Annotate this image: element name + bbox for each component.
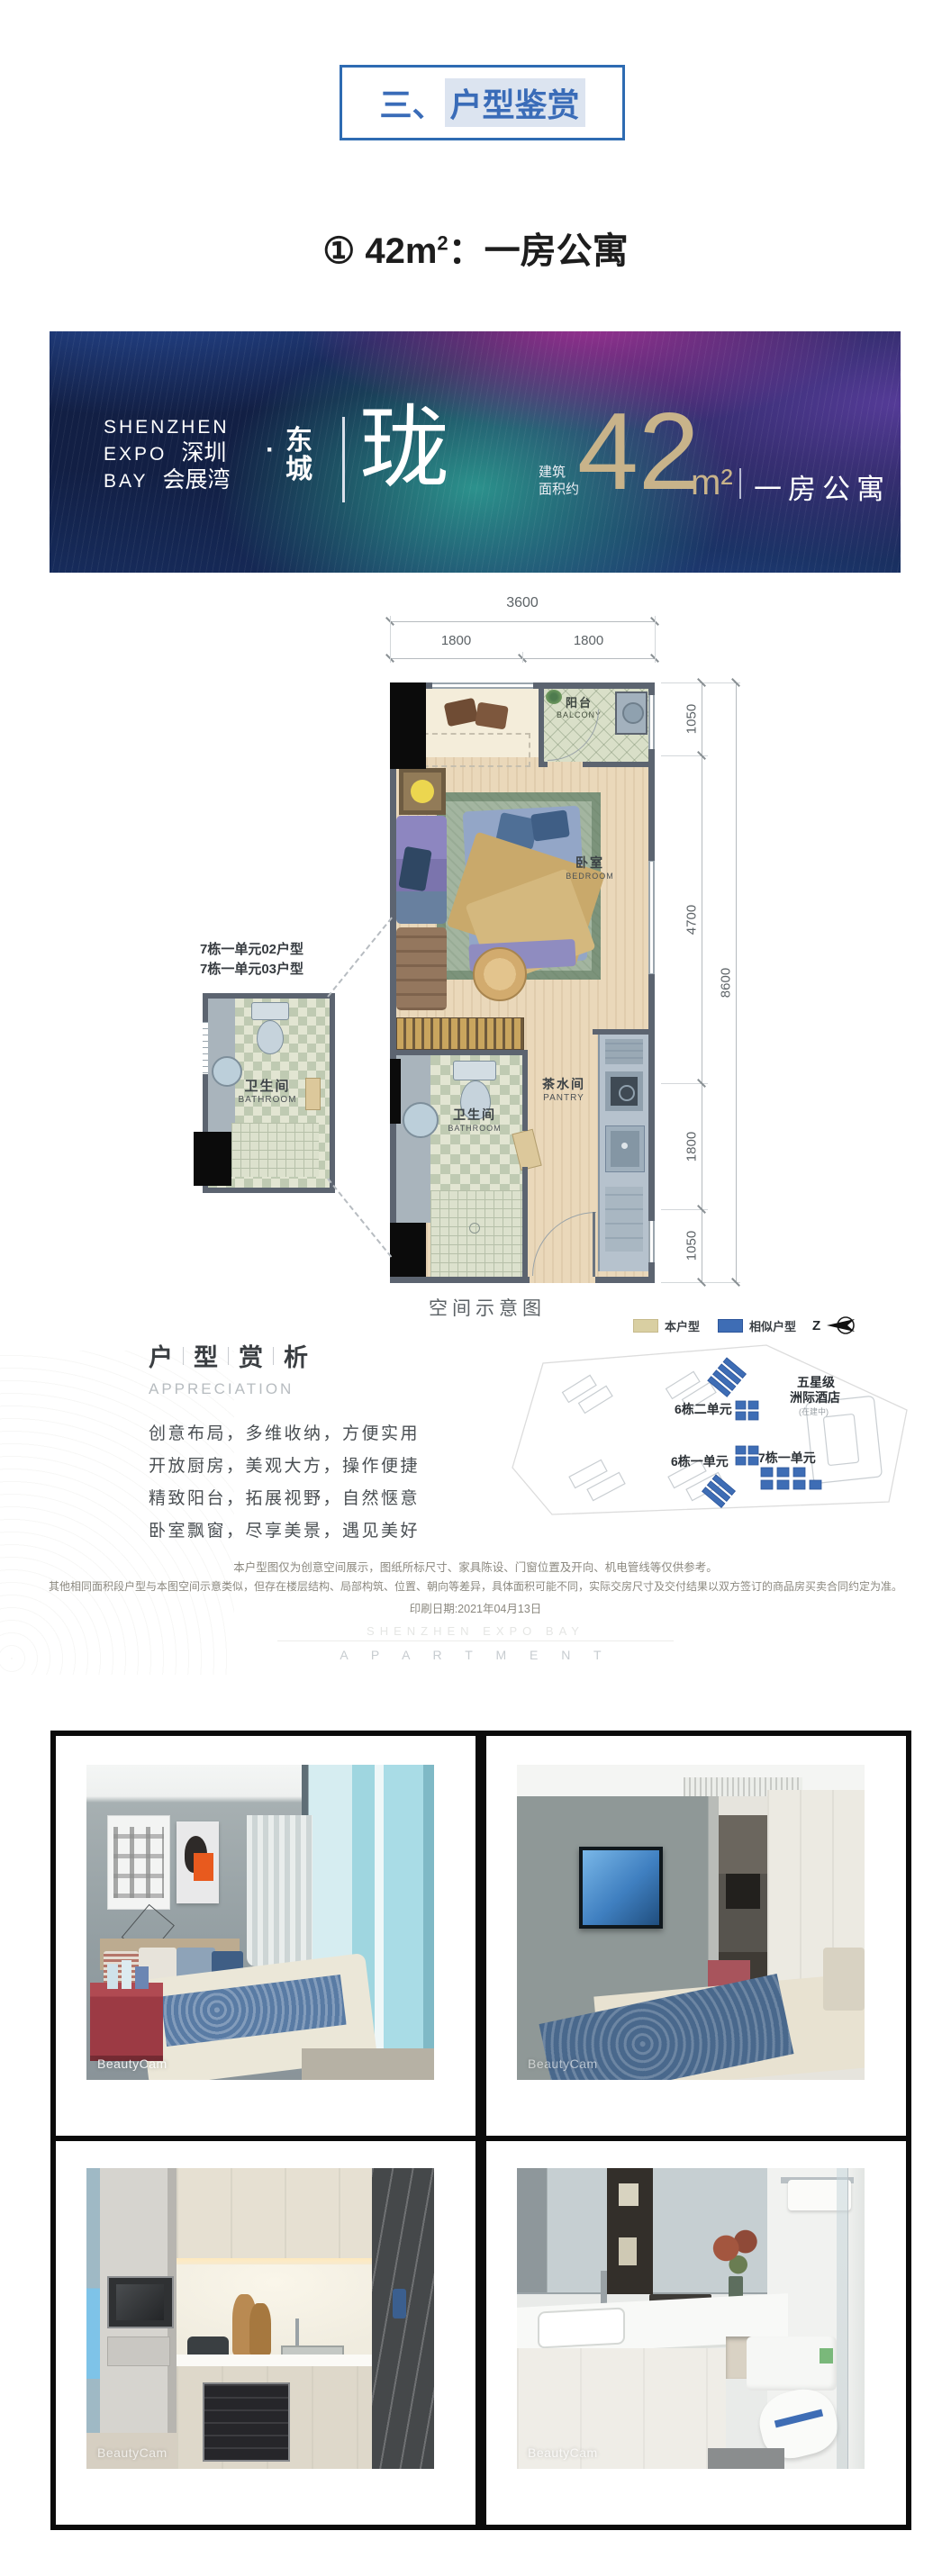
detail-toilet-tank xyxy=(251,1002,289,1020)
bottle xyxy=(107,1964,118,1989)
bathroom-label-en: BATHROOM xyxy=(428,1124,521,1133)
dim-top-total: 3600 xyxy=(477,595,567,611)
wall xyxy=(539,762,548,767)
title-separator xyxy=(273,1347,274,1365)
floor-plan: 阳台 BALCONY 卧室 BEDROOM xyxy=(390,682,655,1283)
wall xyxy=(522,1167,528,1277)
detail-column xyxy=(194,1132,231,1186)
banner-project-name: 珑 xyxy=(359,403,449,493)
shelf-bottle xyxy=(619,2183,639,2206)
section-title-prefix: 三、 xyxy=(379,79,444,126)
kitchen-sink xyxy=(605,1125,645,1172)
brand-watermark-line-2: A P A R T M E N T xyxy=(0,1648,951,1662)
site-label-hotel-note: (在建中) xyxy=(799,1406,829,1416)
vase xyxy=(135,1966,149,1989)
legend-label-similar-unit: 相似户型 xyxy=(749,1317,796,1334)
art-frame-orange xyxy=(177,1821,218,1903)
brand-watermark-rule xyxy=(277,1641,674,1641)
detail-inset-label-2: 7栋一单元03户型 xyxy=(200,960,303,980)
entry-door-leaf xyxy=(593,1212,595,1277)
dim-ext xyxy=(522,652,523,663)
site-label-hotel-2: 洲际酒店 xyxy=(790,1390,840,1405)
window xyxy=(432,682,533,689)
banner-brand-en-2: EXPO xyxy=(104,441,167,467)
tv xyxy=(579,1847,663,1929)
photo-watermark: BeautyCam xyxy=(528,2056,598,2071)
pantry-label: 茶水间 PANTRY xyxy=(530,1075,597,1103)
banner-area-unit: m² xyxy=(691,463,733,503)
balcony-label-cn: 阳台 xyxy=(544,693,614,710)
banner-brand-en-1: SHENZHEN xyxy=(104,414,230,440)
photo-kitchen: BeautyCam xyxy=(86,2168,434,2469)
banner-area-caption: 建筑 面积约 xyxy=(539,464,579,498)
dim-right-seg1: 1050 xyxy=(684,692,700,746)
washing-machine-door xyxy=(622,702,644,724)
column xyxy=(390,1059,401,1124)
window xyxy=(648,695,655,749)
bathroom-gray-floor xyxy=(396,1055,430,1223)
dim-top-right: 1800 xyxy=(522,633,655,648)
photo-frame-bedroom-tv: BeautyCam xyxy=(481,1731,911,2141)
window xyxy=(648,861,655,974)
toilet-tank xyxy=(453,1061,496,1080)
detail-window-hatch xyxy=(203,1022,208,1074)
banner-dot: · xyxy=(266,435,275,465)
appreciation-line: 创意布局，多维收纳，方便实用 xyxy=(149,1418,455,1451)
blue-vase xyxy=(393,2289,406,2318)
appreciation-lines: 创意布局，多维收纳，方便实用 开放厨房，美观大方，操作便捷 精致阳台，拓展视野，… xyxy=(149,1418,455,1548)
site-label-7-1: 7栋一单元 xyxy=(758,1451,816,1465)
section-title-box: 三、户型鉴赏 xyxy=(340,65,625,140)
side-table-lamp xyxy=(411,780,434,803)
appreciation-title-char: 户 xyxy=(149,1338,173,1373)
cooktop-burner xyxy=(619,1085,635,1101)
detail-bathroom-en: BATHROOM xyxy=(221,1095,314,1105)
photo-watermark: BeautyCam xyxy=(528,2445,598,2460)
banner-brand-cn-2: 会展湾 xyxy=(162,467,230,493)
inset-connector-line xyxy=(327,917,393,998)
bedroom-label: 卧室 BEDROOM xyxy=(548,854,631,881)
banner-brand-logo: SHENZHEN EXPO 深圳 BAY 会展湾 xyxy=(104,414,230,494)
detail-inset-label-1: 7栋一单元02户型 xyxy=(200,940,303,960)
appreciation-line: 精致阳台，拓展视野，自然惬意 xyxy=(149,1483,455,1515)
disclaimer-line-2: 其他相同面积段户型与本图空间示意类似，但存在楼层结构、局部构筑、位置、朝向等差异… xyxy=(0,1578,951,1594)
cooktop-surface xyxy=(611,1077,638,1106)
banner-brand-cn-1: 深圳 xyxy=(181,440,226,466)
bedroom-label-en: BEDROOM xyxy=(548,872,631,881)
dim-line xyxy=(736,682,737,1283)
appreciation-line: 开放厨房，美观大方，操作便捷 xyxy=(149,1451,455,1483)
banner-area-caption-2: 面积约 xyxy=(539,481,579,498)
sofa xyxy=(396,816,447,924)
detail-door xyxy=(305,1078,321,1110)
appreciation-line: 卧室飘窗，尽享美景，遇见美好 xyxy=(149,1515,455,1548)
kitchen-sink-basin xyxy=(611,1131,639,1167)
pantry-label-en: PANTRY xyxy=(530,1093,597,1103)
legend-label-this-unit: 本户型 xyxy=(665,1317,700,1334)
banner-type-divider xyxy=(739,468,741,499)
red-side-table xyxy=(90,1983,163,2062)
mirror-column xyxy=(372,2168,434,2469)
dim-line xyxy=(702,682,702,1283)
cabinet-panel xyxy=(107,2336,169,2366)
inset-connector-line xyxy=(327,1178,392,1257)
countertop xyxy=(177,2355,371,2366)
disclaimer-line-1: 本户型图仅为创意空间展示，图纸所标尺寸、家具陈设、门窗位置及开向、机电管线等仅供… xyxy=(0,1558,951,1575)
disclaimer-line-3: 印刷日期:2021年04月13日 xyxy=(0,1599,951,1616)
kitchen-cabinet xyxy=(605,1039,643,1064)
art-frame-squares xyxy=(107,1815,169,1910)
photo-bedroom-tv: BeautyCam xyxy=(517,1765,865,2080)
dim-right-seg3: 1800 xyxy=(684,1120,700,1174)
appreciation-subtitle: APPRECIATION xyxy=(149,1380,455,1398)
photo-bedroom: BeautyCam xyxy=(86,1765,434,2080)
seat-pillow xyxy=(475,702,509,730)
art-squares-texture xyxy=(113,1827,164,1899)
unit-heading-area: 42m xyxy=(365,231,437,271)
unit-heading-area-sup: 2 xyxy=(437,232,448,255)
legend-swatch-this-unit xyxy=(633,1319,658,1333)
site-label-hotel-1: 五星级 xyxy=(797,1375,836,1389)
window xyxy=(648,1221,655,1262)
tv-screen xyxy=(583,1850,659,1926)
photo-watermark: BeautyCam xyxy=(97,2445,168,2460)
detail-inset-plan: 卫生间 BATHROOM xyxy=(203,993,335,1193)
appreciation-title-char: 赏 xyxy=(239,1338,263,1373)
photo-watermark: BeautyCam xyxy=(97,2056,168,2071)
round-table xyxy=(473,947,527,1001)
photo-bathroom: BeautyCam xyxy=(517,2168,865,2469)
wall xyxy=(583,762,655,767)
appreciation-title-char: 型 xyxy=(194,1338,218,1373)
wall xyxy=(648,682,655,1283)
wall xyxy=(595,1277,655,1283)
energy-sticker xyxy=(820,2348,833,2364)
photo-frame-kitchen: BeautyCam xyxy=(50,2136,481,2530)
column xyxy=(390,1223,426,1277)
kitchen-lower-cabinet xyxy=(605,1187,643,1252)
brand-watermark-line-1: SHENZHEN EXPO BAY xyxy=(0,1624,951,1638)
detail-bathroom-label: 卫生间 BATHROOM xyxy=(221,1076,314,1105)
sofa-pillow xyxy=(398,846,432,892)
wall xyxy=(539,682,544,767)
shelf-bottle xyxy=(619,2237,637,2265)
appreciation-title: 户 型 赏 析 xyxy=(149,1338,455,1373)
unit-heading-suffix: ：一房公寓 xyxy=(448,231,629,271)
window-sliver xyxy=(86,2168,100,2469)
detail-bathroom-cn: 卫生间 xyxy=(221,1076,314,1095)
cooktop xyxy=(605,1071,643,1111)
toilet-tank xyxy=(747,2336,837,2391)
dim-top-left: 1800 xyxy=(390,633,522,648)
bedroom-label-cn: 卧室 xyxy=(548,854,631,872)
faucet xyxy=(295,2318,300,2348)
plan-caption: 空间示意图 xyxy=(352,1294,622,1321)
detail-inset-labels: 7栋一单元02户型 7栋一单元03户型 xyxy=(200,940,303,980)
bottle xyxy=(122,1960,132,1989)
wall xyxy=(390,1050,528,1055)
section-title-highlight: 户型鉴赏 xyxy=(445,78,585,127)
site-label-6-1: 6栋一单元 xyxy=(671,1454,729,1469)
banner-type-label: 一房公寓 xyxy=(754,466,891,507)
banner-area-number: 42 xyxy=(577,396,700,506)
microwave-door xyxy=(116,2284,164,2321)
lounge-chair xyxy=(396,927,447,1010)
banner: SHENZHEN EXPO 深圳 BAY 会展湾 · 东 城 珑 建筑 面积约 … xyxy=(50,331,901,573)
bench-rack xyxy=(396,1017,524,1050)
bed-pillow xyxy=(530,809,570,841)
banner-district: 东 城 xyxy=(285,427,312,484)
art-orange-block xyxy=(194,1853,213,1881)
glass-panel xyxy=(837,2168,847,2469)
dim-right-seg2: 4700 xyxy=(684,893,700,947)
bathroom-label: 卫生间 BATHROOM xyxy=(428,1106,521,1133)
pantry-label-cn: 茶水间 xyxy=(530,1075,597,1093)
shower-area xyxy=(430,1190,522,1277)
banner-divider-bar xyxy=(342,417,345,502)
wall xyxy=(522,1050,528,1131)
bed-pillows xyxy=(823,1948,865,2011)
wall xyxy=(390,682,396,1283)
north-label: Z xyxy=(812,1318,820,1333)
bathroom-floor xyxy=(708,2448,784,2469)
detail-shower-tiles xyxy=(231,1123,319,1177)
dim-ext xyxy=(655,616,656,663)
title-separator xyxy=(228,1347,229,1365)
dim-right-total: 8600 xyxy=(719,956,734,1010)
banner-district-char-2: 城 xyxy=(285,456,312,484)
vanity-sink xyxy=(538,2307,625,2348)
appreciation-block: 户 型 赏 析 APPRECIATION 创意布局，多维收纳，方便实用 开放厨房… xyxy=(149,1338,455,1548)
title-separator xyxy=(183,1347,184,1365)
washing-machine xyxy=(615,691,648,735)
unit-heading-index: ① xyxy=(322,231,355,271)
dim-line xyxy=(390,621,655,622)
microwave xyxy=(107,2276,173,2327)
built-in-oven xyxy=(204,2384,288,2460)
shower-drain xyxy=(469,1223,480,1234)
kitchen-faucet xyxy=(621,1143,628,1149)
bedroom-floor xyxy=(302,2048,434,2080)
site-label-6-2: 6栋二单元 xyxy=(675,1402,732,1416)
unit-heading: ① 42m2：一房公寓 xyxy=(0,221,951,274)
bedroom-curtain xyxy=(247,1815,312,1966)
side-table xyxy=(399,768,446,815)
built-in-oven xyxy=(726,1874,760,1909)
photo-frame-bathroom: BeautyCam xyxy=(481,2136,911,2530)
upper-cabinets xyxy=(177,2168,371,2258)
dim-right-seg4: 1050 xyxy=(684,1219,700,1273)
banner-brand-en-3: BAY xyxy=(104,468,148,494)
sitemap-legend: 本户型 相似户型 Z xyxy=(633,1315,862,1335)
column xyxy=(390,682,426,769)
banner-area-caption-1: 建筑 xyxy=(539,464,579,481)
north-arrow-icon xyxy=(824,1315,862,1335)
legend-swatch-similar-unit xyxy=(718,1319,743,1333)
wall xyxy=(593,1029,655,1035)
cutting-board-2 xyxy=(249,2303,270,2355)
sitemap: 五星级 洲际酒店 (在建中) 6栋二单元 6栋一单元 7栋一单元 xyxy=(500,1340,919,1524)
dim-ext xyxy=(390,616,391,663)
brochure-page: 三、户型鉴赏 ① 42m2：一房公寓 SHENZHEN EXPO 深圳 BAY … xyxy=(0,0,951,2576)
appreciation-title-char: 析 xyxy=(284,1338,308,1373)
wall xyxy=(390,1277,530,1283)
bathroom-faucet xyxy=(601,2271,608,2307)
banner-district-char-1: 东 xyxy=(285,427,312,456)
bathroom-label-cn: 卫生间 xyxy=(428,1106,521,1124)
detail-toilet-bowl xyxy=(257,1020,284,1054)
mirror-shelf-column xyxy=(607,2168,652,2294)
photo-frame-bedroom: BeautyCam xyxy=(50,1731,481,2141)
